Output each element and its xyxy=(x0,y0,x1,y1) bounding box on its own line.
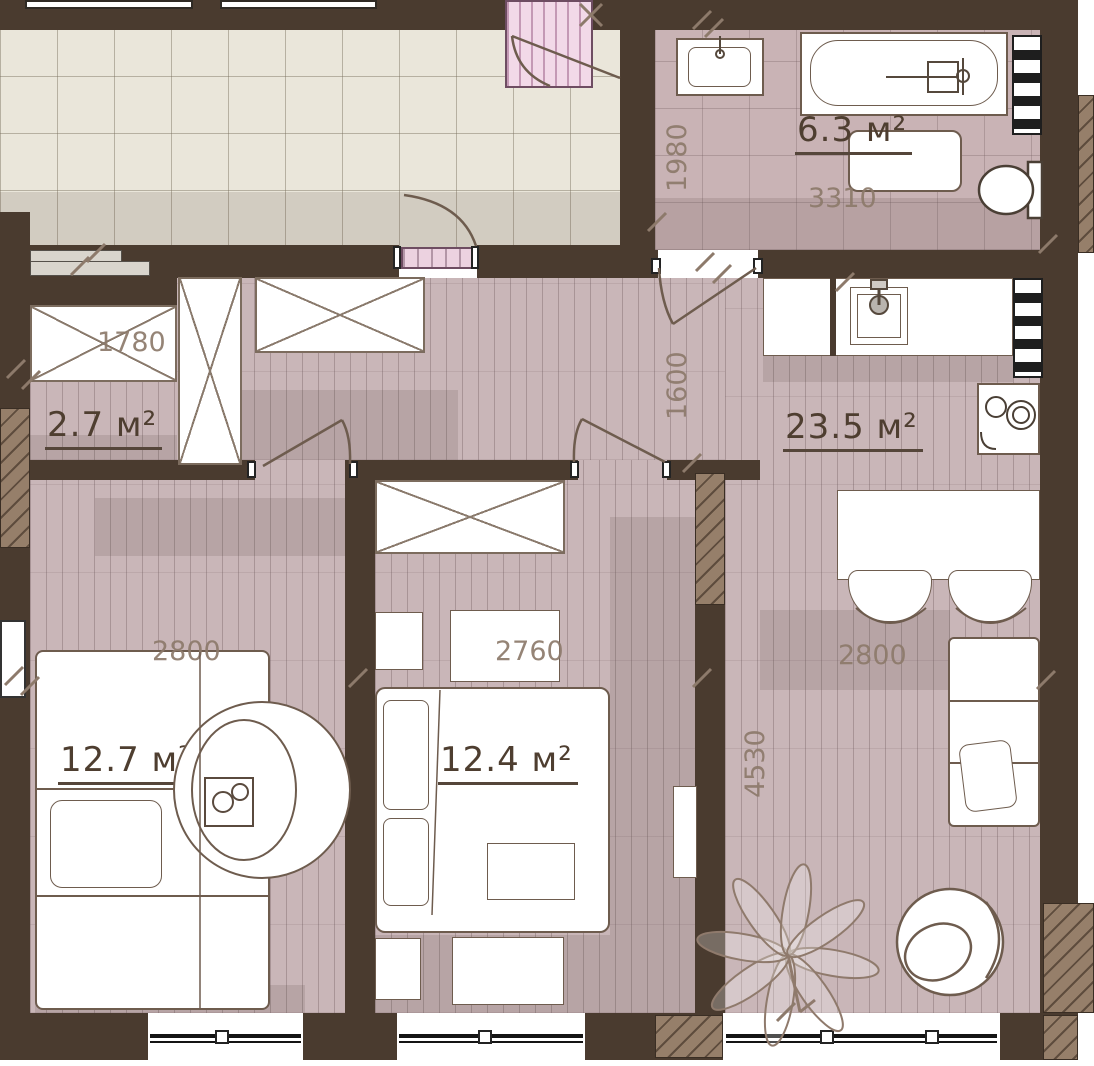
bed-pillow xyxy=(50,800,162,888)
kitchen-sink-basin xyxy=(857,294,901,338)
window-jamb xyxy=(925,1030,939,1044)
wardrobe-icon xyxy=(178,277,242,465)
dimension-label: 4530 xyxy=(740,698,771,798)
wall-right xyxy=(1040,0,1078,1013)
neighbor-door-2 xyxy=(220,0,377,9)
wardrobe-icon xyxy=(375,480,565,554)
counter-divider xyxy=(830,274,836,356)
entrance-door-leaf xyxy=(401,247,473,269)
door-jamb xyxy=(651,258,661,274)
nightstand xyxy=(375,612,423,670)
left-wall-window xyxy=(0,620,26,698)
hatch-middle-column xyxy=(695,473,725,605)
sofa-seam xyxy=(950,700,1038,702)
bed-pillow xyxy=(383,818,429,906)
window-jamb xyxy=(820,1030,834,1044)
door-jamb xyxy=(570,461,579,478)
towel-rail-icon xyxy=(1012,35,1042,135)
dimension-label: 2760 xyxy=(495,636,564,667)
door-jamb xyxy=(393,246,401,269)
shelf xyxy=(673,786,697,878)
sofa-pillow xyxy=(958,739,1018,813)
hatch-bottom-corner xyxy=(1043,1015,1078,1060)
bed-blanket xyxy=(487,843,575,900)
bed-seam xyxy=(37,788,268,790)
shadow xyxy=(763,356,1013,382)
window-jamb xyxy=(478,1030,492,1044)
wall-hall-bottom-b xyxy=(352,460,578,480)
window xyxy=(723,1017,1000,1057)
kitchen-shelf-icon xyxy=(1013,278,1043,378)
door-jamb xyxy=(753,258,763,274)
hatch-left-column xyxy=(0,408,30,548)
room-area-label: 12.4 м² xyxy=(438,740,578,785)
bathtub-basin xyxy=(810,40,998,106)
wall-bathroom-left xyxy=(620,30,655,250)
wall-bottom-2 xyxy=(303,1013,397,1060)
door-jamb xyxy=(471,246,479,269)
wardrobe-icon xyxy=(255,277,425,353)
dining-table xyxy=(837,490,1040,580)
shadow xyxy=(610,517,695,1013)
wall-bathroom-bottom xyxy=(758,250,1040,278)
dimension-label: 1600 xyxy=(662,330,693,420)
wall-bottom-1 xyxy=(30,1013,148,1060)
hatch-right-top xyxy=(1078,95,1094,253)
shadow xyxy=(228,390,458,460)
hatch-bottom-right xyxy=(1043,903,1094,1013)
sink-basin xyxy=(688,47,751,87)
room-area-label: 23.5 м² xyxy=(783,407,923,452)
hatch-bottom-mid xyxy=(655,1015,723,1058)
wall-bedrooms-divider xyxy=(345,460,375,1013)
stove-icon xyxy=(977,383,1040,455)
entrance-step-2 xyxy=(30,261,150,276)
wall-corridor-bottom-b xyxy=(477,245,630,278)
room-area-label: 6.3 м² xyxy=(795,110,912,155)
nightstand xyxy=(375,938,421,1000)
bench xyxy=(452,937,564,1005)
door-jamb xyxy=(349,461,358,478)
window-jamb xyxy=(215,1030,229,1044)
bed-pillow xyxy=(383,700,429,810)
door-jamb xyxy=(662,461,671,478)
floor-plan: 6.3 м² 1980 3310 2.7 м² 1780 1600 23.5 м… xyxy=(0,0,1094,1066)
dimension-label: 2800 xyxy=(838,640,907,671)
wall-top-right xyxy=(593,0,1078,30)
dimension-label: 1980 xyxy=(662,96,693,192)
shadow xyxy=(0,192,620,248)
room-area-label: 12.7 м² xyxy=(58,740,198,785)
neighbor-door-1 xyxy=(25,0,193,9)
shadow xyxy=(95,498,345,556)
dimension-label: 2800 xyxy=(152,636,221,667)
door-jamb xyxy=(247,461,256,478)
dimension-label: 1780 xyxy=(97,327,166,358)
room-area-label: 2.7 м² xyxy=(45,405,162,450)
stairs xyxy=(505,0,593,88)
bed-seam xyxy=(37,895,268,897)
dimension-label: 3310 xyxy=(808,183,877,214)
